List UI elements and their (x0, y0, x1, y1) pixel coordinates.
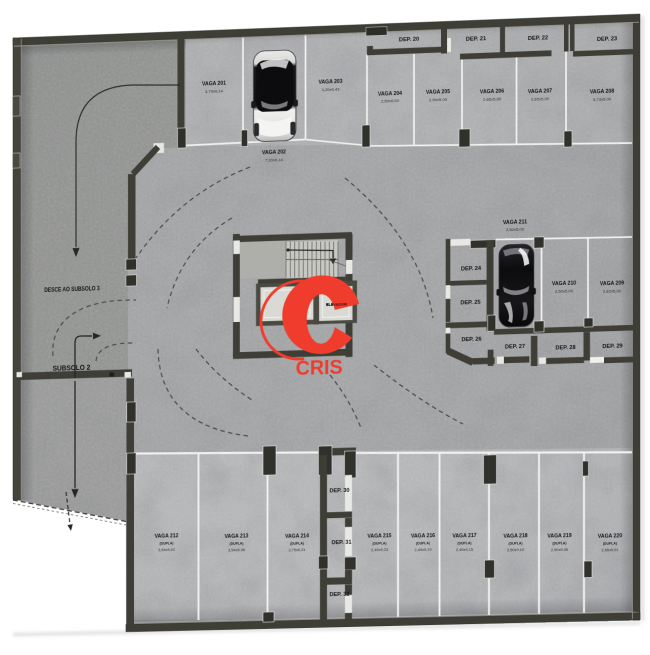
svg-text:DEP. 26: DEP. 26 (461, 337, 481, 344)
svg-text:CRIS: CRIS (296, 356, 343, 380)
svg-text:3,20x6,43: 3,20x6,43 (321, 87, 339, 93)
svg-text:2,65x9,01: 2,65x9,01 (601, 547, 618, 553)
svg-text:2,50x5,00: 2,50x5,00 (429, 97, 447, 103)
svg-text:VAGA 216: VAGA 216 (411, 533, 435, 540)
svg-text:VAGA 205: VAGA 205 (426, 89, 450, 96)
svg-text:DEP. 20: DEP. 20 (399, 37, 419, 44)
svg-text:VAGA 211: VAGA 211 (503, 219, 527, 226)
svg-text:2,50x9,06: 2,50x9,06 (551, 547, 568, 553)
svg-text:VAGA 209: VAGA 209 (600, 281, 624, 288)
svg-text:(DUPLA): (DUPLA) (416, 541, 431, 545)
svg-text:DEP. 24: DEP. 24 (461, 266, 481, 273)
svg-text:(DUPLA): (DUPLA) (230, 541, 245, 545)
svg-text:VAGA 220: VAGA 220 (598, 533, 622, 540)
svg-text:DEP. 28: DEP. 28 (555, 345, 575, 352)
svg-text:2,40x9,23: 2,40x9,23 (371, 547, 388, 553)
svg-text:DEP. 31: DEP. 31 (331, 540, 351, 547)
svg-text:2,40x9,19: 2,40x9,19 (414, 547, 431, 553)
svg-text:DEP. 23: DEP. 23 (597, 36, 617, 43)
svg-text:VAGA 212: VAGA 212 (155, 533, 179, 540)
svg-text:(DUPLA): (DUPLA) (508, 541, 523, 545)
svg-text:3,54x9,36: 3,54x9,36 (228, 547, 245, 553)
svg-text:VAGA 219: VAGA 219 (547, 533, 571, 540)
svg-text:(DUPLA): (DUPLA) (457, 541, 472, 545)
svg-text:3,70x6,14: 3,70x6,14 (205, 88, 224, 94)
svg-text:3,54x9,42: 3,54x9,42 (158, 547, 175, 552)
svg-text:2,50x9,10: 2,50x9,10 (507, 547, 524, 553)
svg-text:(DUPLA): (DUPLA) (603, 541, 618, 545)
svg-text:VAGA 208: VAGA 208 (590, 88, 614, 95)
svg-text:7,20x6,14: 7,20x6,14 (265, 157, 284, 163)
svg-text:DEP. 32: DEP. 32 (329, 592, 349, 599)
svg-text:DEP. 27: DEP. 27 (505, 344, 525, 351)
svg-text:VAGA 215: VAGA 215 (367, 533, 391, 540)
svg-text:2,75x9,31: 2,75x9,31 (289, 547, 306, 553)
svg-text:DEP. 21: DEP. 21 (466, 36, 486, 43)
svg-text:VAGA 201: VAGA 201 (202, 81, 226, 88)
svg-text:VAGA 206: VAGA 206 (480, 88, 504, 95)
svg-text:2,50x5,00: 2,50x5,00 (506, 227, 524, 233)
svg-text:VAGA 214: VAGA 214 (285, 533, 310, 540)
svg-text:(DUPLA): (DUPLA) (160, 541, 175, 545)
svg-text:2,50x5,00: 2,50x5,00 (381, 98, 399, 104)
svg-text:SUBSOLO 2: SUBSOLO 2 (53, 363, 91, 372)
svg-text:VAGA 218: VAGA 218 (503, 533, 527, 540)
svg-text:2,82x5,00: 2,82x5,00 (603, 288, 621, 294)
svg-text:VAGA 204: VAGA 204 (378, 90, 403, 97)
svg-text:2,65x5,00: 2,65x5,00 (531, 96, 549, 102)
svg-text:DEP. 29: DEP. 29 (602, 344, 622, 351)
svg-text:2,50x5,00: 2,50x5,00 (555, 288, 573, 294)
svg-text:(DUPLA): (DUPLA) (372, 541, 387, 545)
svg-text:VAGA 210: VAGA 210 (552, 281, 576, 288)
svg-text:VAGA 203: VAGA 203 (318, 79, 342, 86)
svg-text:(DUPLA): (DUPLA) (290, 541, 305, 545)
svg-text:VAGA 213: VAGA 213 (225, 533, 249, 540)
svg-text:DEP. 22: DEP. 22 (528, 35, 548, 42)
svg-text:DEP. 25: DEP. 25 (460, 300, 480, 307)
svg-text:2,40x9,15: 2,40x9,15 (456, 547, 473, 553)
svg-text:DEP. 30: DEP. 30 (329, 488, 349, 495)
svg-text:3,73x5,00: 3,73x5,00 (593, 96, 611, 102)
svg-text:VAGA 207: VAGA 207 (528, 88, 552, 95)
svg-text:2,65x5,00: 2,65x5,00 (483, 96, 501, 102)
svg-text:(DUPLA): (DUPLA) (552, 541, 567, 545)
svg-text:VAGA 217: VAGA 217 (452, 533, 476, 540)
svg-text:VAGA 202: VAGA 202 (262, 150, 286, 157)
svg-text:ELEVADOR: ELEVADOR (326, 303, 348, 308)
